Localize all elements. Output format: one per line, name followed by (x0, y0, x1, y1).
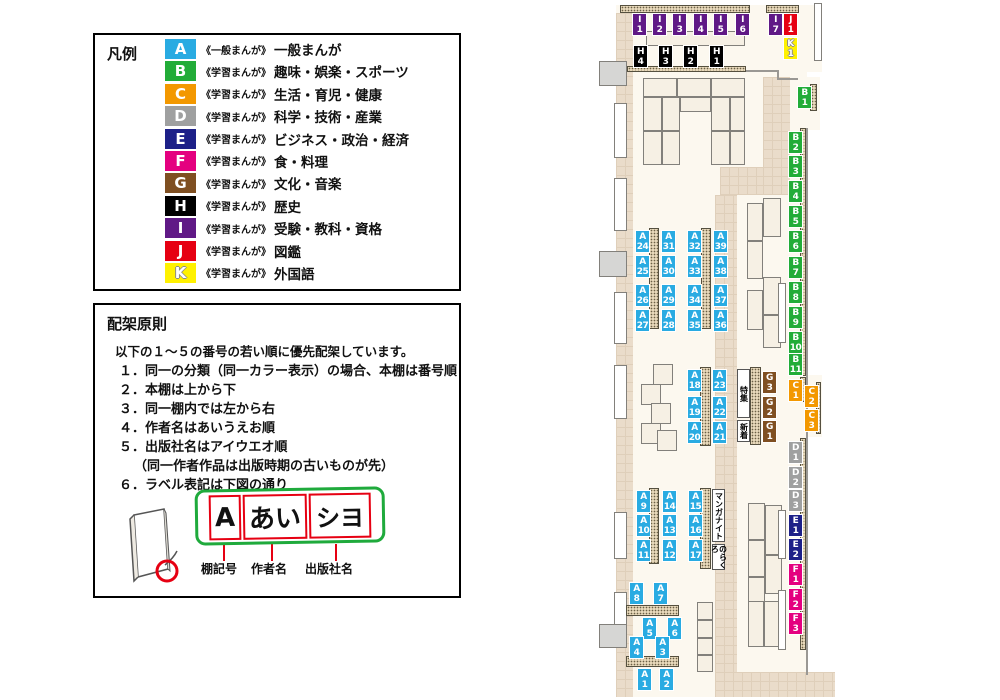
shelf-strip (620, 5, 750, 13)
table (730, 97, 745, 131)
legend-type: 《学習まんが》 (201, 198, 271, 213)
legend-row-G: G《学習まんが》文化・音楽 (165, 173, 409, 193)
principles-rule: （同一作者作品は出版時期の古いものが先） (119, 457, 457, 476)
legend-chip-C: C (165, 84, 196, 104)
principles-rule: ４．作者名はあいうえお順 (119, 419, 457, 438)
table (677, 78, 711, 97)
shelf-label-A13: A13 (662, 514, 677, 537)
table (748, 503, 765, 540)
shelf-label-I7: I7 (768, 13, 783, 36)
shelf-label-A11: A11 (636, 539, 651, 562)
wall-line (777, 78, 798, 80)
table (697, 602, 713, 620)
shelf-label-B4: B4 (788, 180, 803, 203)
book-icon (120, 503, 186, 593)
caption-line (271, 544, 273, 561)
legend-category: 受験・教科・資格 (274, 218, 382, 238)
legend-type: 《学習まんが》 (201, 86, 271, 101)
legend-row-A: A《一般まんが》一般まんが (165, 39, 409, 59)
shelf-label-E1: E1 (788, 514, 803, 537)
shelf-label-B5: B5 (788, 205, 803, 228)
shelf-label-D2: D2 (788, 466, 803, 489)
label-example-frame: A あい シヨ (195, 486, 386, 545)
shelf-label-A12: A12 (662, 539, 677, 562)
shelf-label-H3: H3 (658, 45, 673, 68)
special-label: 新着 (737, 420, 750, 442)
shelf-label-A38: A38 (713, 255, 728, 278)
shelf-label-B3: B3 (788, 155, 803, 178)
label-publisher-box: シヨ (309, 493, 372, 539)
legend-category: 科学・技術・産業 (274, 106, 382, 126)
shelf-strip (701, 228, 711, 329)
table (747, 203, 763, 241)
table (657, 430, 677, 451)
shelf-label-A37: A37 (713, 284, 728, 307)
corridor (763, 77, 790, 195)
legend-row-H: H《学習まんが》歴史 (165, 196, 409, 216)
principles-rule: ２．本棚は上から下 (119, 381, 457, 400)
shelf-label-G3: G3 (762, 371, 777, 394)
label-author-box: あい (243, 494, 308, 540)
legend-row-J: J《学習まんが》図鑑 (165, 241, 409, 261)
entrance-door (599, 251, 627, 277)
shelf-label-A36: A36 (713, 309, 728, 332)
shelf-label-A24: A24 (635, 230, 650, 253)
legend-category: 図鑑 (274, 241, 301, 261)
principles-rule: ３．同一棚内では左から右 (119, 400, 457, 419)
principles-title: 配架原則 (107, 313, 167, 334)
shelf-label-A10: A10 (636, 514, 651, 537)
shelf-label-A26: A26 (635, 284, 650, 307)
table (641, 384, 661, 405)
shelf-label-A21: A21 (712, 421, 727, 444)
shelf-label-I5: I5 (713, 13, 728, 36)
shelf-label-A15: A15 (688, 490, 703, 513)
caption-shelf-code: 棚記号 (201, 560, 237, 577)
legend-category: 歴史 (274, 196, 301, 216)
shelf-strip (750, 367, 761, 445)
wall-segment (614, 365, 627, 419)
shelf-label-E2: E2 (788, 538, 803, 561)
shelf-label-A25: A25 (635, 255, 650, 278)
legend-row-C: C《学習まんが》生活・育児・健康 (165, 84, 409, 104)
shelf-label-A18: A18 (687, 369, 702, 392)
entrance-door (599, 61, 627, 86)
shelf-label-B6: B6 (788, 230, 803, 253)
table (730, 131, 745, 165)
shelf-label-C2: C2 (804, 385, 819, 408)
legend-type: 《学習まんが》 (201, 176, 271, 191)
shelf-label-A8: A8 (629, 582, 644, 605)
shelf-label-B7: B7 (788, 256, 803, 279)
shelf-label-G2: G2 (762, 396, 777, 419)
shelf-label-A3: A3 (655, 636, 670, 659)
legend-category: 一般まんが (274, 39, 342, 59)
legend-chip-F: F (165, 151, 196, 171)
label-shelf-code-box: A (209, 495, 242, 541)
legend-type: 《学習まんが》 (201, 265, 271, 280)
wall-segment (614, 512, 627, 559)
shelf-strip (766, 5, 799, 13)
shelf-label-I6: I6 (735, 13, 750, 36)
legend-chip-E: E (165, 129, 196, 149)
shelf-label-A16: A16 (688, 514, 703, 537)
shelf-strip (626, 605, 679, 616)
principles-rule: １．同一の分類（同一カラー表示）の場合、本棚は番号順 (119, 362, 457, 381)
shelf-label-A39: A39 (713, 230, 728, 253)
shelf-label-A9: A9 (636, 490, 651, 513)
principles-intro: 以下の１～５の番号の若い順に優先配架しています。 (115, 341, 413, 360)
legend-type: 《学習まんが》 (201, 221, 271, 236)
legend-category: 生活・育児・健康 (274, 84, 382, 104)
principles-rule: ５．出版社名はアイウエオ順 (119, 438, 457, 457)
shelf-label-I2: I2 (652, 13, 667, 36)
corridor (720, 167, 763, 195)
legend-type: 《学習まんが》 (201, 109, 271, 124)
shelf-label-D3: D3 (788, 489, 803, 512)
table (711, 97, 730, 131)
entrance-door (599, 624, 627, 648)
special-label: マンガナイト (712, 489, 725, 542)
shelf-label-H2: H2 (683, 45, 698, 68)
special-label: のらくろ (712, 544, 725, 570)
legend-category: 食・料理 (274, 151, 328, 171)
corridor (715, 672, 835, 697)
legend-category: ビジネス・政治・経済 (274, 129, 409, 149)
shelf-label-D1: D1 (788, 441, 803, 464)
caption-line (223, 544, 225, 561)
shelf-label-F2: F2 (788, 588, 803, 611)
legend-row-I: I《学習まんが》受験・教科・資格 (165, 218, 409, 238)
table (697, 655, 713, 672)
legend-chip-G: G (165, 173, 196, 193)
principles-rules: １．同一の分類（同一カラー表示）の場合、本棚は番号順２．本棚は上から下３．同一棚… (119, 362, 457, 495)
shelf-label-A1: A1 (637, 668, 652, 691)
table (747, 241, 763, 279)
legend-title: 凡例 (107, 43, 137, 64)
shelf-label-A29: A29 (661, 284, 676, 307)
shelf-strip (649, 228, 659, 329)
wall-segment (778, 510, 786, 559)
principles-panel: 配架原則 以下の１～５の番号の若い順に優先配架しています。 １．同一の分類（同一… (93, 303, 461, 598)
table (653, 364, 673, 385)
legend-type: 《学習まんが》 (201, 131, 271, 146)
shelf-label-A31: A31 (661, 230, 676, 253)
shelf-label-A14: A14 (662, 490, 677, 513)
legend-chip-D: D (165, 106, 196, 126)
caption-line (335, 544, 337, 561)
legend-type: 《学習まんが》 (201, 243, 271, 258)
shelf-label-A32: A32 (687, 230, 702, 253)
shelf-label-I4: I4 (693, 13, 708, 36)
shelf-label-A23: A23 (712, 369, 727, 392)
legend-rows: A《一般まんが》一般まんがB《学習まんが》趣味・娯楽・スポーツC《学習まんが》生… (165, 39, 409, 285)
legend-type: 《学習まんが》 (201, 64, 271, 79)
shelf-label-C1: C1 (788, 379, 803, 402)
table (697, 620, 713, 638)
legend-row-B: B《学習まんが》趣味・娯楽・スポーツ (165, 61, 409, 81)
shelf-label-A19: A19 (687, 396, 702, 419)
wall-segment (614, 178, 627, 231)
shelf-label-H1: H1 (709, 45, 724, 68)
shelf-label-A28: A28 (661, 309, 676, 332)
caption-author: 作者名 (251, 560, 287, 577)
shelf-label-A33: A33 (687, 255, 702, 278)
caption-publisher: 出版社名 (305, 560, 353, 577)
shelf-label-B8: B8 (788, 281, 803, 304)
shelf-label-B11: B11 (788, 353, 803, 376)
table (662, 131, 680, 165)
shelf-label-I1: I1 (632, 13, 647, 36)
legend-type: 《学習まんが》 (201, 153, 271, 168)
table (662, 97, 680, 131)
table (711, 78, 745, 97)
legend-row-K: K《学習まんが》外国語 (165, 263, 409, 283)
table (747, 290, 763, 330)
shelf-label-A4: A4 (629, 636, 644, 659)
wall-segment (778, 283, 786, 343)
shelf-label-B10: B10 (788, 331, 803, 354)
table (697, 638, 713, 655)
shelf-label-A34: A34 (687, 284, 702, 307)
legend-category: 外国語 (274, 263, 315, 283)
shelf-label-F3: F3 (788, 612, 803, 635)
shelf-label-A17: A17 (688, 539, 703, 562)
shelf-label-H4: H4 (633, 45, 648, 68)
legend-chip-I: I (165, 218, 196, 238)
shelf-label-A22: A22 (712, 396, 727, 419)
shelf-label-B9: B9 (788, 306, 803, 329)
legend-type: 《一般まんが》 (201, 42, 271, 57)
shelf-label-F1: F1 (788, 563, 803, 586)
wall-segment (778, 590, 786, 650)
wall-segment (614, 103, 627, 158)
table (680, 97, 711, 112)
legend-chip-A: A (165, 39, 196, 59)
legend-row-F: F《学習まんが》食・料理 (165, 151, 409, 171)
table (763, 198, 781, 237)
shelf-label-C3: C3 (804, 409, 819, 432)
shelf-label-A30: A30 (661, 255, 676, 278)
shelf-label-G1: G1 (762, 420, 777, 443)
table (711, 131, 730, 165)
table (748, 601, 764, 647)
table (643, 97, 662, 131)
legend-panel: 凡例 A《一般まんが》一般まんがB《学習まんが》趣味・娯楽・スポーツC《学習まん… (93, 33, 461, 291)
wall-segment (814, 3, 822, 61)
shelf-label-I3: I3 (672, 13, 687, 36)
shelf-label-A20: A20 (687, 421, 702, 444)
table (643, 78, 677, 97)
special-label: 特集 (737, 369, 750, 418)
table (765, 555, 782, 594)
table (651, 403, 671, 424)
wall-segment (614, 292, 627, 344)
legend-category: 趣味・娯楽・スポーツ (274, 61, 409, 81)
shelf-label-K1: K1 (783, 37, 798, 60)
shelf-label-A7: A7 (653, 582, 668, 605)
shelf-label-A2: A2 (659, 668, 674, 691)
table (643, 131, 662, 165)
legend-category: 文化・音楽 (274, 173, 342, 193)
shelf-label-A35: A35 (687, 309, 702, 332)
shelf-label-B2: B2 (788, 131, 803, 154)
legend-chip-H: H (165, 196, 196, 216)
legend-chip-B: B (165, 61, 196, 81)
shelf-label-A27: A27 (635, 309, 650, 332)
shelf-label-B1: B1 (797, 86, 812, 109)
table (748, 540, 765, 577)
legend-chip-K: K (165, 263, 196, 283)
shelf-label-J1: J1 (783, 13, 798, 36)
legend-row-E: E《学習まんが》ビジネス・政治・経済 (165, 129, 409, 149)
legend-row-D: D《学習まんが》科学・技術・産業 (165, 106, 409, 126)
legend-chip-J: J (165, 241, 196, 261)
manga-floor-guide-poster: 凡例 A《一般まんが》一般まんがB《学習まんが》趣味・娯楽・スポーツC《学習まん… (0, 0, 1000, 700)
